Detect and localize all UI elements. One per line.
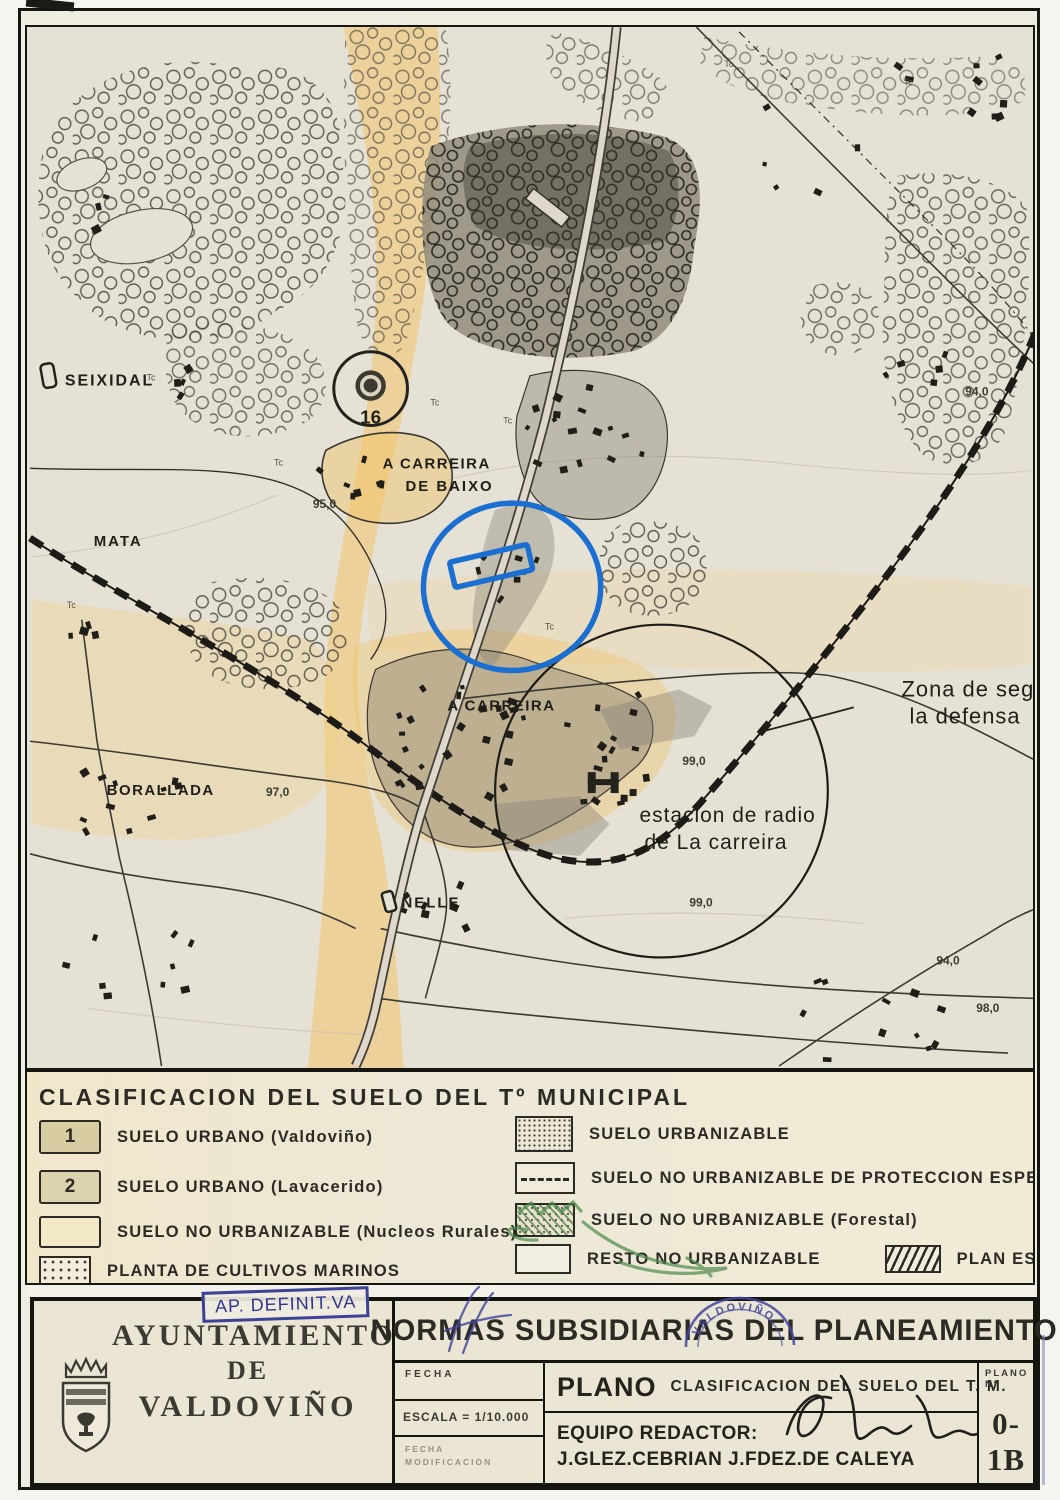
tc-mark: Tc [147,373,156,383]
legend-item-label: PLANTA DE CULTIVOS MARINOS [107,1262,400,1281]
elevation-value: 94,0 [936,953,960,967]
swatch-resto [515,1244,571,1274]
legend-item-label: PLAN ESPECIAL [957,1250,1035,1269]
fecha-cell: FECHA [395,1363,543,1401]
legend-item-resto: RESTO NO URBANIZABLE PLAN ESPECIAL [515,1244,1035,1274]
legend-item-nucleos-rurales: SUELO NO URBANIZABLE (Nucleos Rurales) [39,1216,517,1248]
swatch-proteccion-especial [515,1162,575,1194]
legend-item-label: SUELO URBANO (Lavacerido) [117,1178,384,1197]
plano-number-label: PLANO Nº [979,1363,1033,1390]
label-nelle: NELLE [402,895,461,912]
org-line1: AYUNTAMIENTO [112,1317,384,1355]
label-zona-1: Zona de seg [902,676,1033,701]
label-mata: MATA [94,533,143,550]
escala-cell: ESCALA = 1/10.000 [395,1401,543,1437]
scan-edge-line [1042,1335,1045,1485]
label-carreira-baixo-1: A CARREIRA [383,455,491,472]
plano-number-value: 0-1B [979,1406,1033,1478]
seixidal-building-glyph [40,363,57,389]
fecha-mod-line2: MODIFICACION [405,1456,533,1469]
swatch-urbano-2: 2 [39,1170,101,1204]
legend-item-urbano-lavacerido: 2 SUELO URBANO (Lavacerido) [39,1170,384,1204]
marker-16-label: 16 [360,407,381,428]
pen-scribble [419,1279,559,1357]
swatch-plan-especial [885,1245,941,1273]
elevation-value: 97,0 [266,785,290,799]
legend-item-label: SUELO NO URBANIZABLE (Nucleos Rurales) [117,1223,517,1242]
elevation-value: 95,0 [313,497,337,511]
org-line3: VALDOVIÑO [112,1387,384,1427]
label-estacion-1: estacion de radio [640,804,816,827]
fecha-modificacion-cell: FECHA MODIFICACION [395,1437,543,1483]
swatch-urbano-1: 1 [39,1120,101,1154]
plano-label: PLANO [557,1372,657,1403]
signature-scribble [769,1356,984,1484]
round-stamp-text: VALDOVIÑO [690,1301,777,1338]
tc-mark: Tc [904,77,913,87]
tc-mark: Tc [430,398,439,408]
org-name: AYUNTAMIENTO DE VALDOVIÑO [112,1317,384,1427]
label-carreira: A CARREIRA [447,697,555,714]
round-stamp: VALDOVIÑO [674,1283,804,1349]
legend-item-label: RESTO NO URBANIZABLE [587,1250,821,1269]
label-seixidal: SEIXIDAL [65,373,154,390]
swatch-urbanizable [515,1116,573,1152]
org-line2: DE [112,1355,384,1387]
tc-mark: Tc [503,415,512,425]
legend-item-cultivos-marinos: PLANTA DE CULTIVOS MARINOS [39,1256,400,1285]
label-zona-2: la defensa [909,703,1020,728]
svg-text:VALDOVIÑO: VALDOVIÑO [690,1301,777,1338]
swatch-cultivos-marinos [39,1256,91,1285]
tc-mark: Tc [724,59,733,69]
scanned-plan-page: 16 SEIXIDAL MATA A CARREIRA DE BAIXO A C… [0,0,1060,1500]
legend-panel: CLASIFICACION DEL SUELO DEL Tº MUNICIPAL… [25,1070,1035,1285]
fecha-mod-line1: FECHA [405,1443,533,1456]
title-block: AYUNTAMIENTO DE VALDOVIÑO AP. DEFINIT.VA… [30,1297,1037,1487]
tc-mark: Tc [274,457,283,467]
plano-number-cell: PLANO Nº 0-1B [979,1363,1033,1483]
elevation-value: 98,0 [976,1001,1000,1015]
map-drawing: 16 SEIXIDAL MATA A CARREIRA DE BAIXO A C… [27,27,1033,1068]
tc-mark: Tc [67,600,76,610]
legend-item-label: SUELO NO URBANIZABLE (Forestal) [591,1211,918,1230]
elevation-value: 99,0 [689,896,713,910]
legend-title: CLASIFICACION DEL SUELO DEL Tº MUNICIPAL [39,1084,690,1111]
map-area: 16 SEIXIDAL MATA A CARREIRA DE BAIXO A C… [25,25,1035,1070]
legend-item-label: SUELO URBANO (Valdoviño) [117,1128,373,1147]
legend-item-proteccion-especial: SUELO NO URBANIZABLE DE PROTECCION ESPEC… [515,1162,1035,1194]
swatch-nucleos-rurales [39,1216,101,1248]
approval-stamp: AP. DEFINIT.VA [202,1286,370,1323]
legend-item-urbano-valdovino: 1 SUELO URBANO (Valdoviño) [39,1120,373,1154]
swatch-forestal [515,1203,575,1237]
elevation-value: 94,0 [965,385,989,399]
label-estacion-2: de La carreira [645,831,788,854]
elevation-value: 99,0 [682,754,706,768]
legend-item-urbanizable: SUELO URBANIZABLE [515,1116,790,1152]
label-borallada: BORALLADA [107,782,215,799]
label-carreira-baixo-2: DE BAIXO [405,478,493,495]
legend-item-label: SUELO NO URBANIZABLE DE PROTECCION ESPEC… [591,1169,1035,1188]
legend-item-label: SUELO URBANIZABLE [589,1125,790,1144]
title-block-left-cell: AYUNTAMIENTO DE VALDOVIÑO AP. DEFINIT.VA [34,1301,392,1483]
tc-mark: Tc [545,622,554,632]
legend-item-forestal: SUELO NO URBANIZABLE (Forestal) [515,1203,918,1237]
